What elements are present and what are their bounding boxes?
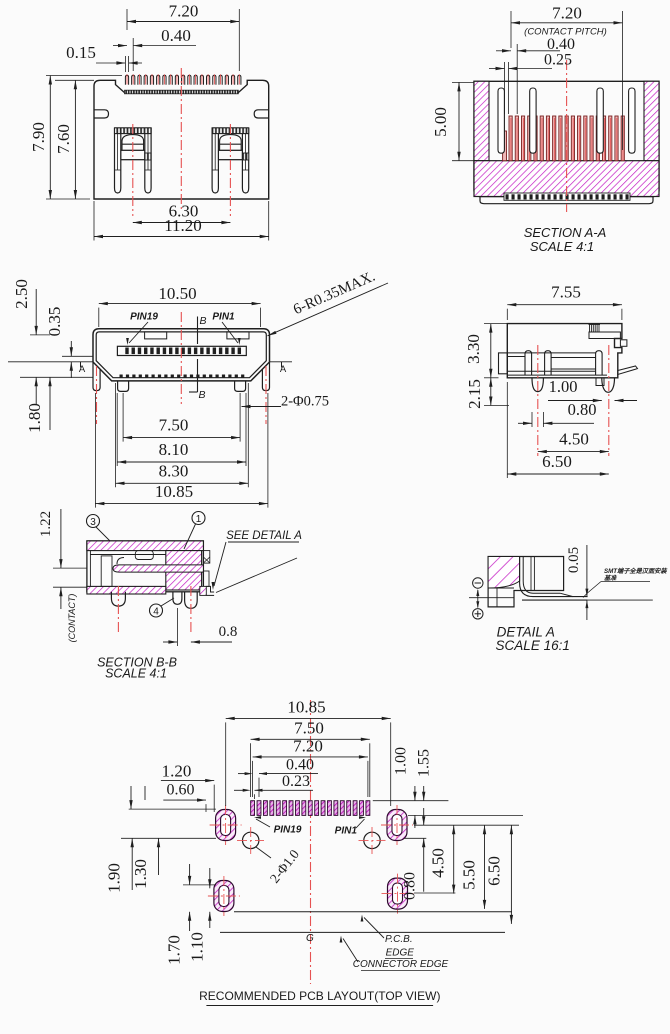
svg-text:PIN19: PIN19 xyxy=(274,825,302,836)
svg-text:0.60: 0.60 xyxy=(167,782,195,799)
svg-text:7.60: 7.60 xyxy=(54,124,73,154)
svg-text:0.15: 0.15 xyxy=(66,43,96,62)
svg-text:1.90: 1.90 xyxy=(105,863,124,893)
svg-text:7.20: 7.20 xyxy=(293,737,323,756)
svg-text:10.85: 10.85 xyxy=(155,482,193,501)
svg-text:7.55: 7.55 xyxy=(551,283,581,302)
svg-text:11.20: 11.20 xyxy=(164,216,202,235)
svg-text:B: B xyxy=(198,389,205,401)
svg-text:(CONTACT): (CONTACT) xyxy=(67,594,77,643)
svg-text:EDGE: EDGE xyxy=(386,948,415,959)
svg-text:2.15: 2.15 xyxy=(465,379,484,409)
svg-text:1.30: 1.30 xyxy=(131,859,150,889)
svg-text:8.30: 8.30 xyxy=(159,462,189,481)
svg-text:0.35: 0.35 xyxy=(45,307,64,337)
svg-text:6.50: 6.50 xyxy=(485,856,504,886)
svg-text:CONNECTOR EDGE: CONNECTOR EDGE xyxy=(353,959,449,970)
svg-text:1.22: 1.22 xyxy=(38,511,54,537)
svg-text:G: G xyxy=(306,933,314,944)
svg-text:7.90: 7.90 xyxy=(29,122,48,152)
svg-text:2.50: 2.50 xyxy=(12,279,31,309)
svg-text:SCALE 4:1: SCALE 4:1 xyxy=(530,239,594,254)
svg-text:PIN19: PIN19 xyxy=(130,312,158,323)
svg-text:0.23: 0.23 xyxy=(282,773,310,790)
svg-text:基准: 基准 xyxy=(604,574,617,582)
svg-text:0.80: 0.80 xyxy=(402,872,419,900)
svg-text:3: 3 xyxy=(90,517,96,528)
svg-text:1.80: 1.80 xyxy=(25,403,44,433)
svg-text:PIN1: PIN1 xyxy=(335,826,358,837)
svg-text:4.50: 4.50 xyxy=(429,848,448,878)
svg-text:SCALE 4:1: SCALE 4:1 xyxy=(105,667,167,681)
svg-text:10.85: 10.85 xyxy=(287,698,325,717)
svg-text:P.C.B.: P.C.B. xyxy=(385,934,413,945)
svg-text:0.40: 0.40 xyxy=(286,757,314,774)
svg-text:1.20: 1.20 xyxy=(162,762,192,781)
svg-text:0.40: 0.40 xyxy=(161,26,191,45)
svg-text:A: A xyxy=(280,364,287,375)
svg-text:1.55: 1.55 xyxy=(416,749,433,777)
svg-text:7.20: 7.20 xyxy=(169,2,199,21)
svg-text:RECOMMENDED PCB LAYOUT(TOP: RECOMMENDED PCB LAYOUT(TOP VIEW) xyxy=(199,989,440,1003)
svg-text:1.00: 1.00 xyxy=(393,747,410,775)
svg-text:5.50: 5.50 xyxy=(460,860,479,890)
svg-text:SEE DETAIL A: SEE DETAIL A xyxy=(226,530,302,542)
svg-text:4: 4 xyxy=(153,607,159,618)
svg-text:1.00: 1.00 xyxy=(549,377,578,396)
svg-text:6.50: 6.50 xyxy=(542,452,572,471)
svg-text:1: 1 xyxy=(196,514,202,525)
svg-text:8.10: 8.10 xyxy=(159,440,189,459)
svg-text:7.50: 7.50 xyxy=(294,719,324,738)
svg-text:5.00: 5.00 xyxy=(431,107,450,137)
svg-text:A: A xyxy=(79,364,86,375)
svg-text:0.80: 0.80 xyxy=(568,400,597,419)
svg-text:7.20: 7.20 xyxy=(552,4,582,23)
svg-text:1.10: 1.10 xyxy=(188,932,207,962)
svg-text:4.50: 4.50 xyxy=(559,430,589,449)
svg-text:0.25: 0.25 xyxy=(544,52,572,69)
svg-text:PIN1: PIN1 xyxy=(212,312,235,323)
svg-text:0.8: 0.8 xyxy=(219,624,238,640)
svg-text:10.50: 10.50 xyxy=(158,284,196,303)
svg-text:SECTION A-A: SECTION A-A xyxy=(524,225,607,240)
svg-text:B: B xyxy=(199,315,206,327)
svg-text:1.70: 1.70 xyxy=(164,935,183,965)
svg-text:SMT端子全是汉面安装: SMT端子全是汉面安装 xyxy=(604,567,668,575)
svg-text:SCALE 16:1: SCALE 16:1 xyxy=(496,638,570,653)
svg-text:7.50: 7.50 xyxy=(159,416,189,435)
svg-text:0.05: 0.05 xyxy=(566,547,582,573)
svg-text:2-Φ0.75: 2-Φ0.75 xyxy=(281,394,329,410)
svg-text:3.30: 3.30 xyxy=(464,334,483,364)
